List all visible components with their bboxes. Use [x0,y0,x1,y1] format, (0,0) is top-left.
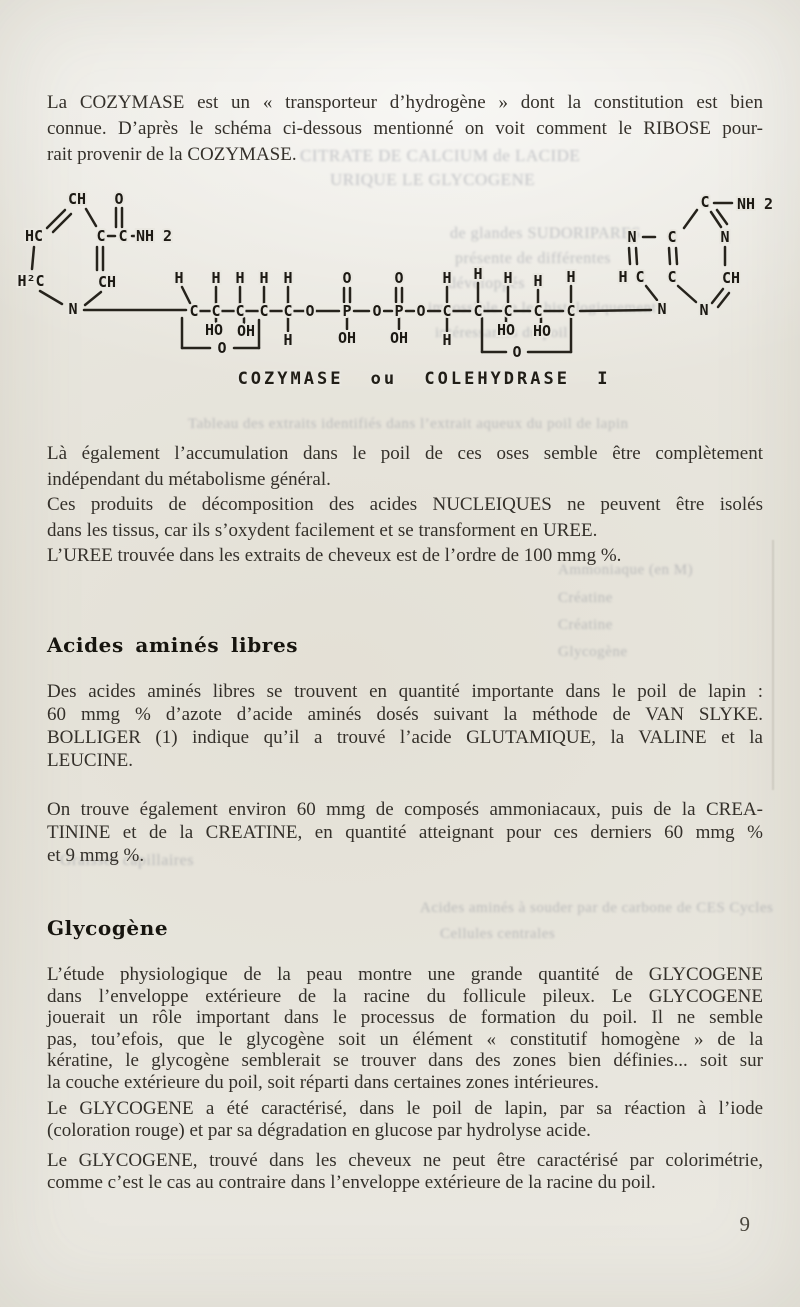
bond [53,214,71,232]
bleed-through-text: Glycogène [558,644,627,661]
atom-label: H [618,268,627,286]
bleed-through-rule [772,540,774,790]
paragraph-glycogene-etude: L’étude physiologique de la peau montre … [47,964,763,1093]
bleed-through-text: Créatine [558,590,613,607]
text-line: La COZYMASE est un « transporteur d’hydr… [47,90,763,116]
atom-label: N [699,301,708,319]
text-line: Des acides aminés libres se trouvent en … [47,680,763,703]
text-line: L’étude physiologique de la peau montre … [47,964,763,986]
bleed-through-text: Tableau des extraits identifiés dans l’e… [188,416,629,433]
atom-label: C [259,302,268,320]
atom-label: C [566,302,575,320]
atom-label: H [533,272,542,290]
paragraph-oses: Là également l’accumulation dans le poil… [47,441,763,493]
bond [85,292,101,305]
bond [47,210,65,228]
atom-label: O [372,302,381,320]
section-heading-acides-amines: Acides aminés libres [47,633,298,657]
text-line: 60 mmg % d’azote d’acide aminés dosés su… [47,703,763,726]
atom-label: C [442,302,451,320]
text-line: Là également l’accumulation dans le poil… [47,441,763,467]
text-line: BOLLIGER (1) indique qu’il a trouvé l’ac… [47,726,763,749]
atom-label: NH 2 [136,227,172,245]
text-line: Le GLYCOGENE a été caractérisé, dans le … [47,1098,763,1120]
paragraph-uree: L’UREE trouvée dans les extraits de chev… [47,543,763,569]
atom-label: H [566,268,575,286]
text-line: Ces produits de décomposition des acides… [47,492,763,518]
atom-label: H²C [17,272,44,290]
text-line: (coloration rouge) et par sa dégradation… [47,1120,763,1142]
page-number: 9 [700,1212,750,1237]
atom-label: NH 2 [737,195,773,213]
atom-label: CH [98,273,116,291]
atom-label: OH [338,329,356,347]
text-line: LEUCINE. [47,749,763,772]
text-line: rait provenir de la COZYMASE. [47,142,763,168]
atom-label: CH [68,190,86,208]
text-line: TININE et de la CREATINE, en quantité at… [47,821,763,844]
atom-label: CH [722,269,740,287]
atom-label: C [118,227,127,245]
atom-label: C [503,302,512,320]
text-line: dans l’enveloppe extérieure de la racine… [47,986,763,1008]
atom-labels: CHOHCCCNH 2H²CCHNHHHHHCCCCCOHOOHHOOPOHOO… [17,190,773,361]
atom-label: H [442,331,451,349]
atom-label: C [700,193,709,211]
atom-label: O [305,302,314,320]
bond [636,248,637,264]
bond [629,248,630,264]
atom-label: H [211,269,220,287]
atom-label: C [235,302,244,320]
atom-label: C [667,228,676,246]
atom-label: H [283,331,292,349]
atom-label: H [442,269,451,287]
bond [182,287,190,303]
atom-label: OH [237,322,255,340]
text-line: indépendant du métabolisme général. [47,467,763,493]
bond [678,286,696,302]
atom-label: C [635,268,644,286]
text-line: connue. D’après le schéma ci-dessous men… [47,116,763,142]
text-line: jouerait un rôle important dans le proce… [47,1007,763,1029]
atom-label: C [283,302,292,320]
text-line: dans les tissus, car ils s’oxydent facil… [47,518,763,544]
scanned-book-page: CITRATE DE CALCIUM de LACIDEURIQUE LE GL… [0,0,800,1307]
atom-label: O [217,339,226,357]
atom-label: O [114,190,123,208]
bleed-through-text: Acides aminés à souder par de carbone de… [420,900,773,917]
paragraph-glycogene-cheveux: Le GLYCOGENE, trouvé dans les cheveux ne… [47,1150,763,1193]
text-line: kératine, le glycogène semblerait se tro… [47,1050,763,1072]
bond [32,247,34,269]
atom-label: H [283,269,292,287]
atom-label: HO [497,321,515,339]
text-line: Le GLYCOGENE, trouvé dans les cheveux ne… [47,1150,763,1172]
atom-label: HO [205,321,223,339]
atom-label: O [512,343,521,361]
paragraph-creatinine: On trouve également environ 60 mmg de co… [47,798,763,867]
section-heading-glycogene: Glycogène [47,916,168,940]
atom-label: H [235,269,244,287]
atom-label: OH [390,329,408,347]
bleed-through-text: Créatine [558,617,613,634]
bond [684,210,697,228]
paragraph-cozymase-intro: La COZYMASE est un « transporteur d’hydr… [47,90,763,168]
atom-label: O [416,302,425,320]
paragraph-nucleiques: Ces produits de décomposition des acides… [47,492,763,544]
atom-label: P [342,302,351,320]
bond [676,248,677,264]
atom-label: N [68,300,77,318]
atom-label: H [503,269,512,287]
atom-label: N [720,228,729,246]
bleed-through-text: Cellules centrales [440,926,555,943]
paragraph-acides-amines: Des acides aminés libres se trouvent en … [47,680,763,772]
text-line: pas, tou’efois, que le glycogène soit un… [47,1029,763,1051]
atom-label: HC [25,227,43,245]
diagram-caption: COZYMASE ou COLEHYDRASE I [238,369,611,389]
atom-label: O [394,269,403,287]
text-line: la couche extérieure du poil, soit répar… [47,1072,763,1094]
atom-label: N [657,300,666,318]
atom-label: O [342,269,351,287]
bond [40,291,62,304]
atom-label: H [174,269,183,287]
atom-label: C [96,227,105,245]
atom-label: HO [533,322,551,340]
cozymase-structure-diagram: CHOHCCCNH 2H²CCHNHHHHHCCCCCOHOOHHOOPOHOO… [0,181,800,396]
bond [580,310,651,311]
bond [669,248,670,264]
text-line: L’UREE trouvée dans les extraits de chev… [47,543,763,569]
atom-label: C [211,302,220,320]
text-line: comme c’est le cas au contraire dans l’e… [47,1172,763,1194]
atom-label: C [473,302,482,320]
atom-label: H [259,269,268,287]
bond [86,209,96,226]
paragraph-glycogene-iode: Le GLYCOGENE a été caractérisé, dans le … [47,1098,763,1141]
atom-label: C [189,302,198,320]
atom-label: N [627,228,636,246]
atom-label: P [394,302,403,320]
atom-label: H [473,265,482,283]
atom-label: C [533,302,542,320]
bond [646,286,657,300]
text-line: et 9 mmg %. [47,844,763,867]
text-line: On trouve également environ 60 mmg de co… [47,798,763,821]
atom-label: C [667,268,676,286]
